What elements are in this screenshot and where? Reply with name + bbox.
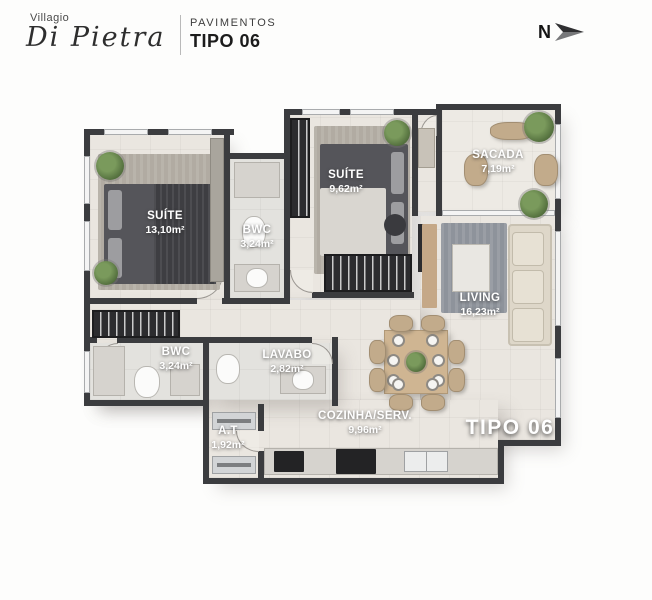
plant: [406, 352, 426, 372]
sofa-cushion: [512, 308, 544, 342]
dining-chair: [389, 315, 413, 332]
balcony-chair: [464, 154, 488, 186]
sofa: [508, 224, 552, 346]
window: [104, 129, 148, 135]
sink: [292, 370, 314, 390]
dining-chair: [369, 368, 386, 392]
wall: [84, 298, 197, 304]
header-subtitle: PAVIMENTOS: [190, 17, 276, 29]
plant: [384, 120, 410, 146]
dining-chair: [448, 368, 465, 392]
header-unit-type: TIPO 06: [190, 31, 261, 52]
window: [84, 221, 90, 271]
plan-stamp-tipo: TIPO 06: [435, 416, 585, 440]
toilet: [216, 354, 240, 384]
shower: [93, 346, 125, 396]
wardrobe: [210, 138, 224, 282]
dining-chair: [421, 394, 445, 411]
dining-chair: [389, 394, 413, 411]
plate: [426, 334, 439, 347]
double-bed: [104, 184, 216, 284]
refrigerator: [404, 451, 448, 472]
tv-console: [422, 224, 437, 308]
wardrobe: [324, 254, 412, 292]
bed-duvet: [320, 188, 386, 256]
shower: [234, 162, 280, 198]
double-bed: [320, 144, 408, 256]
wardrobe: [92, 310, 180, 338]
plate: [392, 378, 405, 391]
pillow: [108, 190, 122, 230]
cooktop: [336, 449, 376, 474]
refrigerator-divider: [426, 452, 427, 471]
sofa-cushion: [512, 232, 544, 266]
laundry-sink: [212, 456, 256, 474]
sink-counter: [170, 364, 200, 396]
wall: [332, 337, 338, 406]
wall: [222, 298, 290, 304]
window: [168, 129, 212, 135]
wall: [224, 153, 290, 159]
compass-n-label: N: [538, 22, 551, 43]
coffee-table: [452, 244, 490, 292]
wall: [436, 104, 561, 110]
wall: [498, 440, 504, 484]
window: [84, 351, 90, 393]
toilet: [134, 366, 160, 398]
window: [350, 109, 394, 115]
entry-cabinet: [418, 128, 435, 168]
sink: [246, 268, 268, 288]
floor-plan-page: Villagio Di Pietra PAVIMENTOS TIPO 06 N: [0, 0, 652, 600]
oven: [274, 451, 304, 472]
floor-plan: SUÍTE 13,10m² BWC 3,24m² SUÍTE 9,62m² SA…: [84, 96, 562, 488]
north-arrow-icon: [553, 20, 585, 44]
wall: [203, 478, 504, 484]
plant: [94, 261, 118, 285]
plant: [524, 112, 554, 142]
plate: [387, 354, 400, 367]
wall: [498, 440, 561, 446]
washing-machine: [212, 412, 256, 430]
wall: [203, 400, 209, 484]
dining-chair: [421, 315, 445, 332]
wall: [312, 292, 414, 298]
plate: [426, 378, 439, 391]
plate: [432, 354, 445, 367]
stool: [384, 214, 406, 236]
brand-logo-script: Di Pietra: [26, 22, 166, 53]
pillow: [391, 152, 404, 194]
plant: [520, 190, 548, 218]
window: [555, 358, 561, 418]
dining-chair: [448, 340, 465, 364]
wardrobe: [290, 118, 310, 218]
compass: N: [538, 20, 585, 44]
wall: [203, 337, 209, 406]
plant: [96, 152, 124, 180]
balcony-chair: [534, 154, 558, 186]
window: [302, 109, 340, 115]
sofa-cushion: [512, 270, 544, 304]
window: [84, 156, 90, 204]
wall: [84, 400, 209, 406]
toilet: [242, 216, 266, 248]
plate: [392, 334, 405, 347]
header-divider: [180, 15, 181, 55]
dining-chair: [369, 340, 386, 364]
bed-blanket: [154, 184, 216, 284]
wall: [258, 404, 264, 431]
window: [555, 231, 561, 326]
